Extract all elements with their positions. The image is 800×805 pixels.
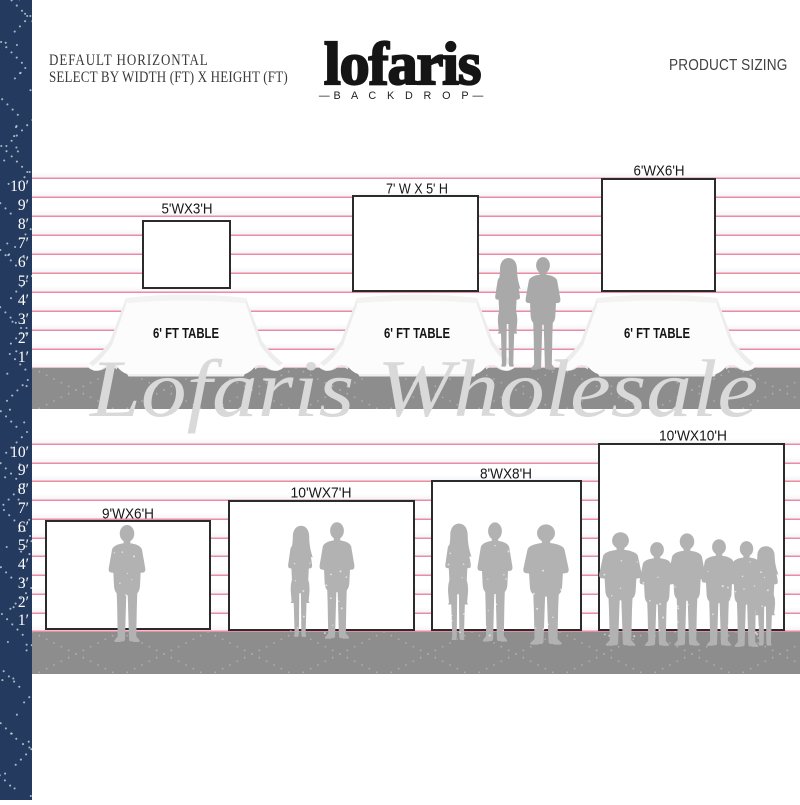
svg-text:10'WX10'H: 10'WX10'H	[659, 429, 727, 444]
svg-text:10'WX7'H: 10'WX7'H	[291, 486, 352, 501]
svg-text:Lofaris Wholesale: Lofaris Wholesale	[89, 343, 758, 434]
svg-text:5'WX3'H: 5'WX3'H	[162, 202, 213, 217]
svg-text:7' W X 5' H: 7' W X 5' H	[386, 182, 448, 197]
svg-text:6'WX6'H: 6'WX6'H	[634, 164, 685, 179]
svg-text:9'WX6'H: 9'WX6'H	[102, 507, 154, 522]
svg-text:8'WX8'H: 8'WX8'H	[480, 467, 532, 482]
